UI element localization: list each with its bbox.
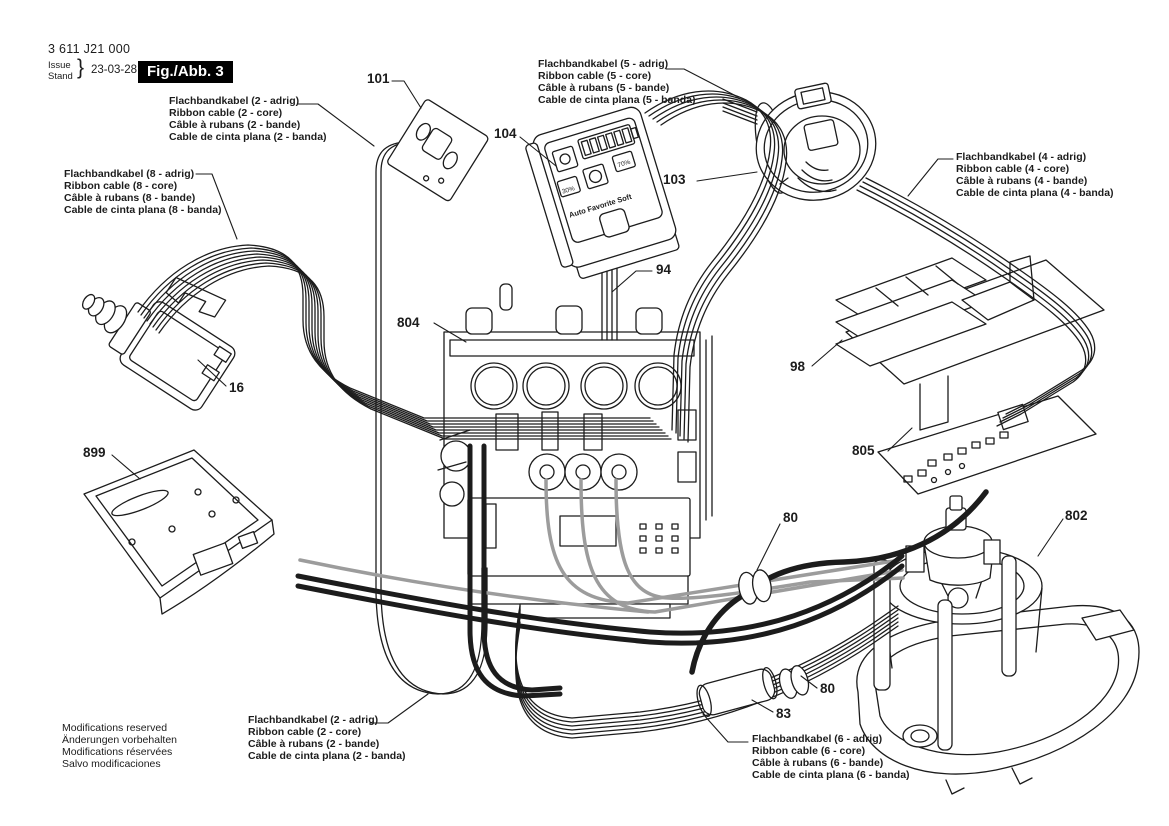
cable-label-line: Flachbandkabel (8 - adrig) bbox=[64, 168, 222, 180]
cable-label-line: Flachbandkabel (5 - adrig) bbox=[538, 58, 696, 70]
leader-ribbon-4core bbox=[908, 159, 953, 196]
cable-grommet-80-upper bbox=[736, 568, 773, 605]
part-callout-83: 83 bbox=[776, 706, 791, 721]
modifications-line: Modifications réservées bbox=[62, 746, 177, 758]
cable-label-line: Flachbandkabel (6 - adrig) bbox=[752, 733, 910, 745]
circuit-board-805 bbox=[878, 396, 1096, 494]
cable-label-line: Flachbandkabel (2 - adrig) bbox=[169, 95, 327, 107]
cable-label-line: Câble à rubans (6 - bande) bbox=[752, 757, 910, 769]
part-callout-899: 899 bbox=[83, 445, 106, 460]
part-callout-103: 103 bbox=[663, 172, 686, 187]
leader-94 bbox=[612, 271, 652, 292]
cable-label-line: Cable de cinta plana (4 - banda) bbox=[956, 187, 1114, 199]
part-callout-80-lower: 80 bbox=[820, 681, 835, 696]
modifications-line: Änderungen vorbehalten bbox=[62, 734, 177, 746]
part-callout-802: 802 bbox=[1065, 508, 1088, 523]
electronics-module-804 bbox=[438, 284, 712, 618]
modifications-line: Salvo modificaciones bbox=[62, 758, 177, 770]
cable-label-line: Ribbon cable (8 - core) bbox=[64, 180, 222, 192]
part-callout-804: 804 bbox=[397, 315, 420, 330]
leader-802 bbox=[1038, 519, 1063, 556]
issue-label-en: Issue bbox=[48, 60, 71, 71]
cable-label-line: Câble à rubans (4 - bande) bbox=[956, 175, 1114, 187]
cable-label-line: Câble à rubans (2 - bande) bbox=[248, 738, 406, 750]
issue-date: 23-03-28 bbox=[91, 64, 137, 76]
issue-brace: } bbox=[77, 56, 84, 80]
cable-label-line: Câble à rubans (8 - bande) bbox=[64, 192, 222, 204]
cable-label-line: Ribbon cable (6 - core) bbox=[752, 745, 910, 757]
cable-label-line: Ribbon cable (2 - core) bbox=[169, 107, 327, 119]
cable-label-line: Flachbandkabel (2 - adrig) bbox=[248, 714, 406, 726]
cable-label-line: Cable de cinta plana (5 - banda) bbox=[538, 94, 696, 106]
part-callout-80-upper: 80 bbox=[783, 510, 798, 525]
part-callout-104: 104 bbox=[494, 126, 517, 141]
cable-label-line: Câble à rubans (2 - bande) bbox=[169, 119, 327, 131]
rotary-dial-103 bbox=[746, 81, 886, 212]
leader-103 bbox=[697, 172, 757, 181]
cable-label-line: Cable de cinta plana (2 - banda) bbox=[248, 750, 406, 762]
leader-101 bbox=[392, 81, 421, 108]
part-callout-94: 94 bbox=[656, 262, 671, 277]
part-callout-98: 98 bbox=[790, 359, 805, 374]
cable-label-2core-bottom: Flachbandkabel (2 - adrig) Ribbon cable … bbox=[248, 714, 406, 762]
cable-label-4core: Flachbandkabel (4 - adrig) Ribbon cable … bbox=[956, 151, 1114, 199]
modifications-line: Modifications reserved bbox=[62, 722, 177, 734]
cable-label-line: Ribbon cable (4 - core) bbox=[956, 163, 1114, 175]
leader-899 bbox=[112, 455, 140, 479]
cable-label-line: Flachbandkabel (4 - adrig) bbox=[956, 151, 1114, 163]
figure-number-box: Fig./Abb. 3 bbox=[138, 61, 233, 83]
cable-label-line: Ribbon cable (2 - core) bbox=[248, 726, 406, 738]
part-callout-16: 16 bbox=[229, 380, 244, 395]
cable-label-5core: Flachbandkabel (5 - adrig) Ribbon cable … bbox=[538, 58, 696, 106]
mounting-plate-899 bbox=[84, 450, 274, 614]
cable-label-line: Cable de cinta plana (6 - banda) bbox=[752, 769, 910, 781]
issue-label-de: Stand bbox=[48, 71, 73, 82]
cable-label-line: Cable de cinta plana (2 - banda) bbox=[169, 131, 327, 143]
cable-label-line: Cable de cinta plana (8 - banda) bbox=[64, 204, 222, 216]
modifications-notice: Modifications reserved Änderungen vorbeh… bbox=[62, 722, 177, 770]
part-callout-101: 101 bbox=[367, 71, 390, 86]
cable-label-line: Câble à rubans (5 - bande) bbox=[538, 82, 696, 94]
cable-label-6core: Flachbandkabel (6 - adrig) Ribbon cable … bbox=[752, 733, 910, 781]
document-part-number: 3 611 J21 000 bbox=[48, 42, 130, 56]
leader-98 bbox=[812, 340, 842, 366]
cable-label-line: Ribbon cable (5 - core) bbox=[538, 70, 696, 82]
cable-label-2core-top: Flachbandkabel (2 - adrig) Ribbon cable … bbox=[169, 95, 327, 143]
part-callout-805: 805 bbox=[852, 443, 875, 458]
switch-plate-101 bbox=[386, 98, 489, 202]
diagram-page: 30% 70% Auto Favorite Soft bbox=[0, 0, 1169, 826]
cable-label-8core: Flachbandkabel (8 - adrig) Ribbon cable … bbox=[64, 168, 222, 216]
leader-80-upper bbox=[757, 524, 780, 570]
display-unit-104: 30% 70% Auto Favorite Soft bbox=[523, 105, 682, 284]
